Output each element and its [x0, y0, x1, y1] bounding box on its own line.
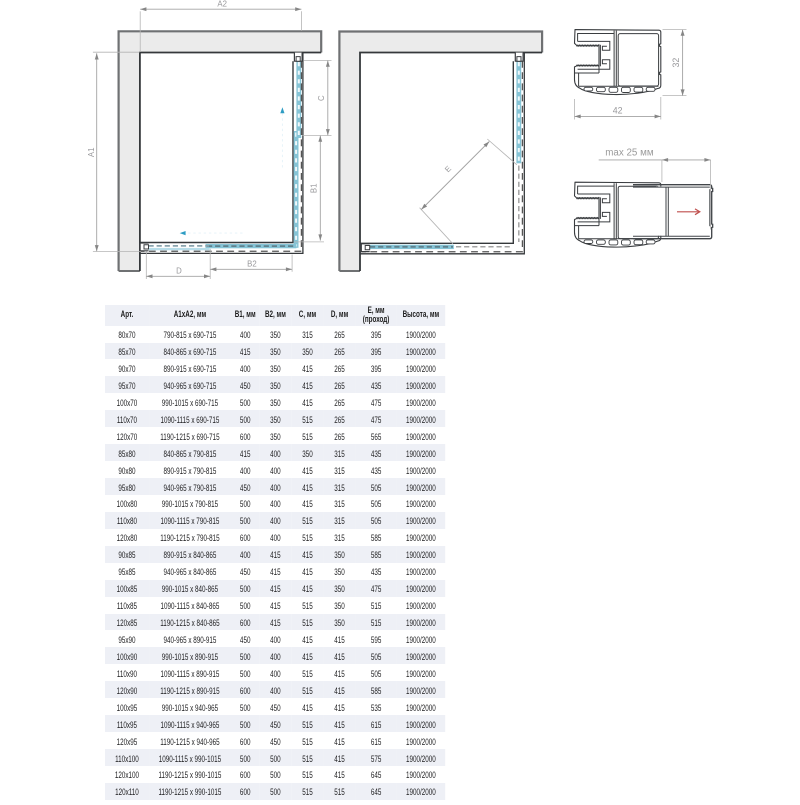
svg-text:A2: A2 — [217, 0, 227, 9]
svg-text:32: 32 — [671, 58, 681, 68]
svg-text:E: E — [443, 164, 453, 174]
svg-text:A1: A1 — [87, 148, 96, 158]
svg-text:C: C — [317, 95, 326, 101]
svg-text:D: D — [176, 267, 182, 276]
svg-text:B2: B2 — [247, 260, 257, 269]
svg-text:42: 42 — [613, 105, 623, 115]
svg-text:max 25 мм: max 25 мм — [605, 148, 654, 159]
svg-text:B1: B1 — [309, 184, 318, 194]
